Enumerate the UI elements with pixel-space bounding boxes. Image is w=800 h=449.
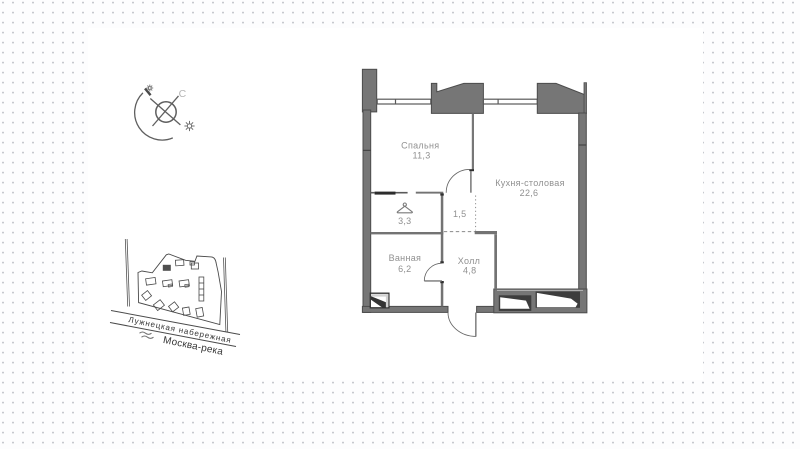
- svg-text:3,3: 3,3: [398, 216, 411, 226]
- svg-text:C: C: [179, 88, 187, 100]
- svg-text:1,5: 1,5: [453, 209, 466, 219]
- svg-text:Кухня-столовая: Кухня-столовая: [495, 178, 565, 188]
- svg-text:22,6: 22,6: [520, 188, 539, 198]
- svg-text:Ванная: Ванная: [389, 253, 422, 263]
- svg-text:4,8: 4,8: [463, 266, 476, 276]
- svg-text:6,2: 6,2: [398, 264, 411, 274]
- svg-text:11,3: 11,3: [412, 150, 430, 160]
- svg-text:Спальня: Спальня: [401, 140, 439, 150]
